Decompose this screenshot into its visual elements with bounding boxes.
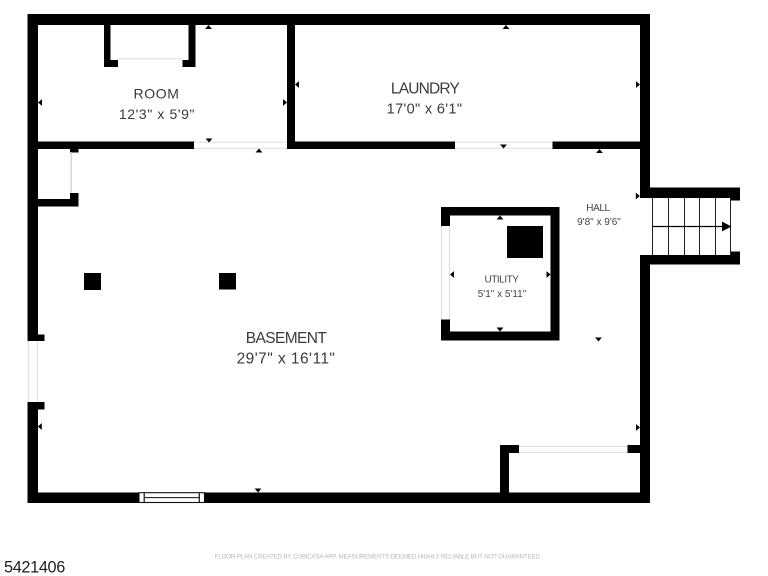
svg-text:29'7" x 16'11": 29'7" x 16'11"	[237, 351, 336, 368]
svg-text:ROOM: ROOM	[134, 86, 180, 102]
svg-text:5'1" x 5'11": 5'1" x 5'11"	[478, 289, 527, 300]
svg-text:5421406: 5421406	[4, 559, 65, 576]
svg-text:LAUNDRY: LAUNDRY	[391, 81, 460, 98]
svg-text:17'0" x 6'1": 17'0" x 6'1"	[387, 102, 463, 118]
svg-text:9'8" x 9'6": 9'8" x 9'6"	[577, 217, 621, 228]
svg-text:UTILITY: UTILITY	[484, 275, 519, 286]
svg-text:HALL: HALL	[586, 203, 610, 214]
svg-text:BASEMENT: BASEMENT	[246, 330, 328, 347]
svg-text:12'3" x 5'9": 12'3" x 5'9"	[119, 106, 195, 122]
svg-text:FLOOR PLAN CREATED BY CUBICASA: FLOOR PLAN CREATED BY CUBICASA APP. MEAS…	[215, 554, 542, 561]
